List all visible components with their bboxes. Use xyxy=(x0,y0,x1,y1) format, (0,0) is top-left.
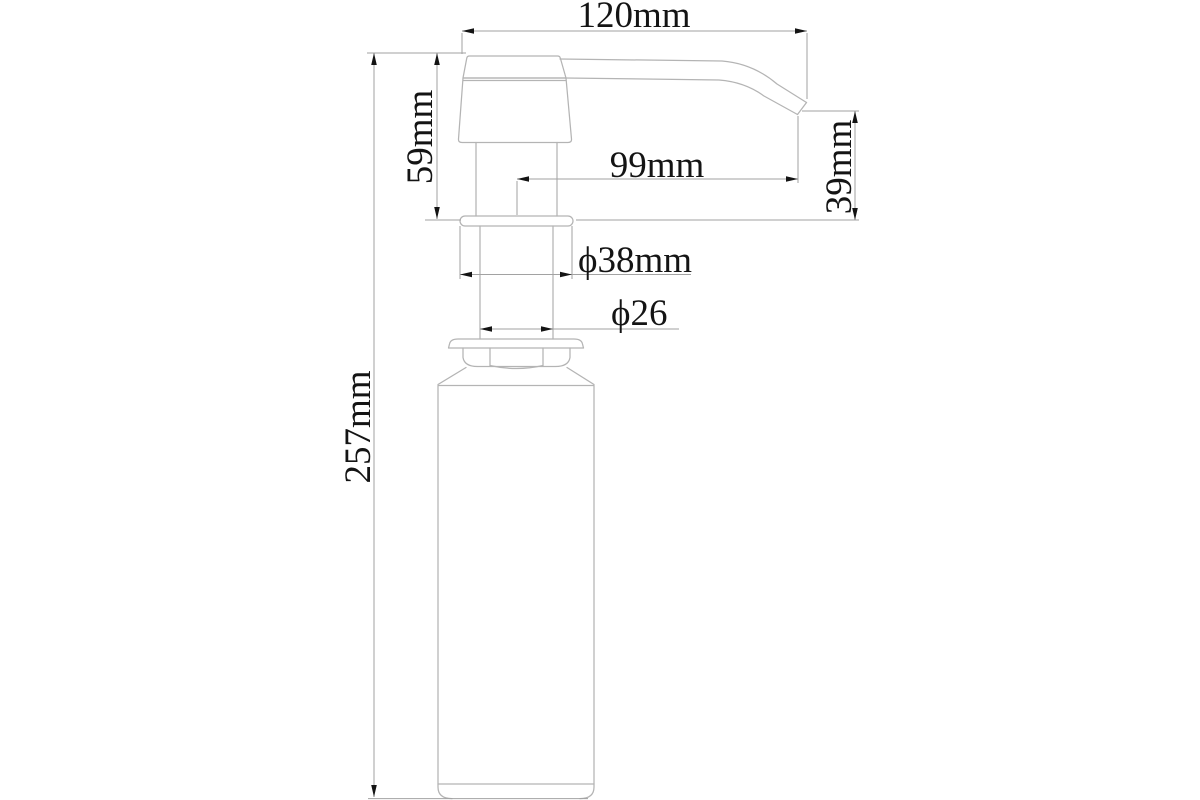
dimension-labels: 120mm 99mm ϕ38mm ϕ26 59mm 39mm 257mm xyxy=(338,0,860,484)
spout-top-edge xyxy=(560,59,807,103)
bottle-shoulder-right xyxy=(567,368,594,385)
dim-label-flange-diameter: ϕ38mm xyxy=(578,240,692,281)
dim-label-spout-reach: 99mm xyxy=(610,145,705,186)
pump-head-cap xyxy=(463,56,566,78)
arrow-99-left-icon xyxy=(517,176,529,182)
arrow-120-right-icon xyxy=(795,28,807,34)
arrow-257-top-icon xyxy=(371,53,377,65)
dim-label-spout-drop: 39mm xyxy=(819,120,860,215)
arrow-120-left-icon xyxy=(462,28,474,34)
arrow-38-left-icon xyxy=(460,272,472,278)
arrow-59-top-icon xyxy=(434,53,440,65)
drawing-canvas: 120mm 99mm ϕ38mm ϕ26 59mm 39mm 257mm xyxy=(0,0,1200,800)
arrow-59-bottom-icon xyxy=(434,207,440,219)
arrow-26-right-icon xyxy=(541,326,553,332)
dim-label-head-height: 59mm xyxy=(400,90,441,185)
bottle-shoulder-left xyxy=(438,368,466,385)
spout-tip xyxy=(798,103,807,115)
spout-bottom-edge xyxy=(565,78,798,115)
pump-head-skirt xyxy=(458,78,571,143)
arrow-257-bottom-icon xyxy=(371,785,377,797)
arrow-26-left-icon xyxy=(480,326,492,332)
arrow-38-right-icon xyxy=(560,272,572,278)
dim-label-neck-diameter: ϕ26 xyxy=(611,293,667,334)
locknut xyxy=(463,348,570,367)
arrow-99-right-icon xyxy=(786,176,798,182)
dimension-arrowheads xyxy=(371,28,858,797)
bottle-body xyxy=(438,386,594,799)
dim-label-overall-height: 257mm xyxy=(338,370,379,483)
dim-label-overall-width: 120mm xyxy=(577,0,690,36)
escutcheon xyxy=(449,339,584,348)
dispenser-technical-drawing: 120mm 99mm ϕ38mm ϕ26 59mm 39mm 257mm xyxy=(0,0,1200,800)
mounting-flange xyxy=(460,216,573,226)
